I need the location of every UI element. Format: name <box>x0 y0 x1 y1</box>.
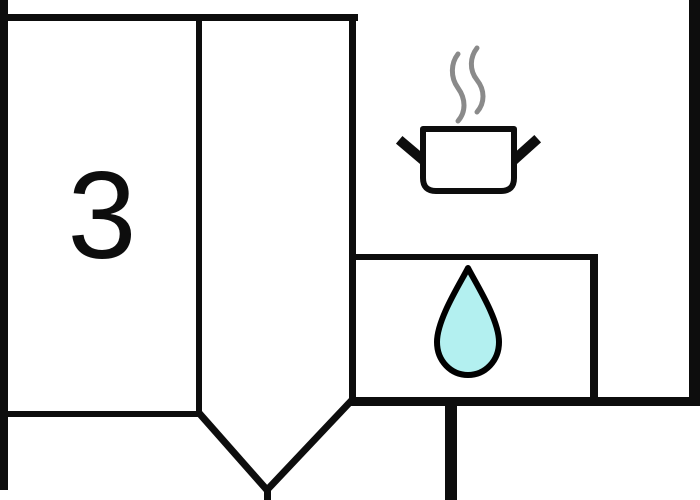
wall-column-right <box>349 14 356 401</box>
steam-icon <box>471 48 483 112</box>
floorplan-canvas: 3 <box>0 0 700 500</box>
wall-diagonal-right <box>267 400 352 490</box>
wall-waterbox-right <box>590 254 598 400</box>
steam-icon <box>452 54 464 121</box>
wall-room3-bottom <box>0 411 202 417</box>
wall-arrow-tail <box>264 486 271 500</box>
wall-room3-right <box>196 14 202 414</box>
water-drop-shape <box>437 268 499 375</box>
wall-bottom-right <box>349 397 700 406</box>
wall-hanging-bar <box>445 397 457 500</box>
wall-diagonal-left <box>199 413 267 490</box>
wall-waterbox-top <box>349 254 598 260</box>
pot-body <box>423 129 514 191</box>
water-drop-icon <box>430 263 506 381</box>
wall-right <box>689 0 700 403</box>
wall-top <box>0 14 358 21</box>
room-label-3: 3 <box>8 21 196 411</box>
cooking-pot-icon <box>390 35 550 200</box>
